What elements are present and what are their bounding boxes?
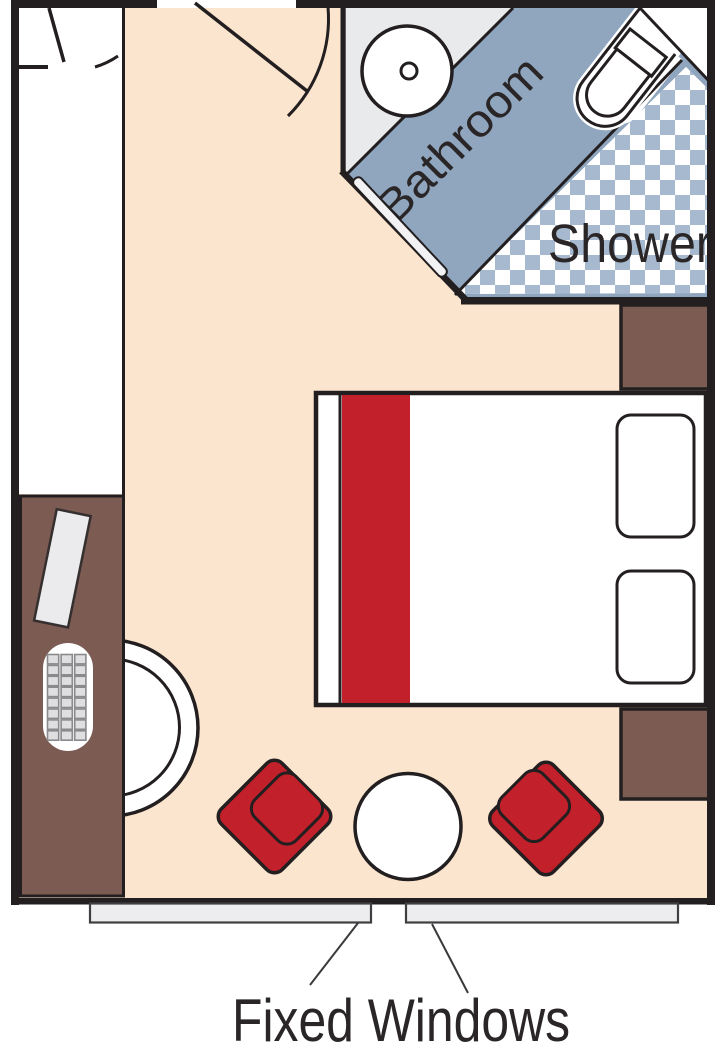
svg-text:Fixed Windows: Fixed Windows	[232, 987, 570, 1049]
svg-text:Shower: Shower	[548, 214, 712, 274]
